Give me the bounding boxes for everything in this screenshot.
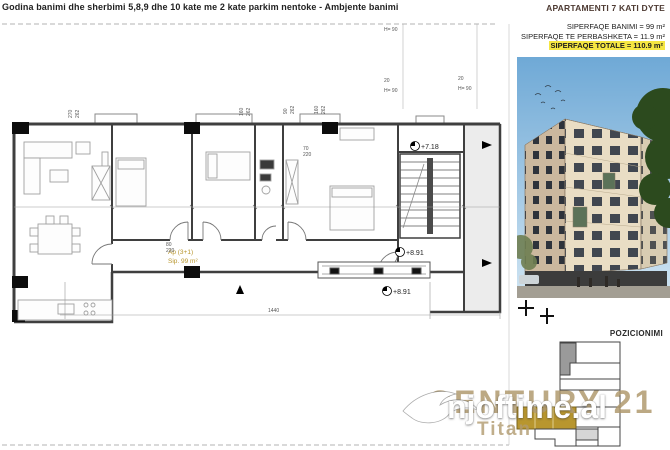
furniture: [18, 128, 374, 320]
entry-porch: [318, 262, 430, 278]
svg-text:262: 262: [75, 109, 81, 118]
svg-text:H= 90: H= 90: [384, 88, 398, 94]
svg-text:220: 220: [303, 152, 312, 158]
elevation-mid-label: +8.91: [406, 250, 424, 257]
elevation-lower-label: +8.91: [393, 289, 411, 296]
svg-text:160: 160: [314, 105, 320, 114]
svg-text:90: 90: [283, 108, 289, 114]
elevation-upper-label: +7.18: [421, 144, 439, 151]
area-line-totale: SIPERFAQE TOTALE = 110.9 m²: [549, 41, 665, 50]
common-corridor: [464, 124, 500, 312]
svg-text:20: 20: [458, 76, 464, 82]
apartment-info-block: APARTAMENTI 7 KATI DYTE SIPERFAQE BANIMI…: [521, 3, 665, 51]
unit-area-label: Sip. 99 m²: [168, 258, 198, 265]
svg-text:262: 262: [246, 107, 252, 116]
svg-text:270: 270: [68, 109, 74, 118]
street: [517, 286, 670, 298]
svg-text:262: 262: [321, 105, 327, 114]
svg-text:262: 262: [290, 105, 296, 114]
svg-text:160: 160: [239, 107, 245, 116]
svg-text:220: 220: [166, 248, 175, 254]
svg-text:H= 90: H= 90: [458, 86, 472, 92]
drawing-title: Godina banimi dhe sherbimi 5,8,9 dhe 10 …: [2, 2, 472, 12]
svg-text:H= 90: H= 90: [384, 27, 398, 33]
svg-text:1440: 1440: [268, 308, 279, 314]
building-render-photo: [517, 57, 670, 298]
ground-floor-shops: [525, 271, 667, 288]
portal-watermark: njoftime.al: [447, 389, 607, 426]
area-line-perbashketa: SIPERFAQE TE PERBASHKETA = 11.9 m²: [521, 32, 665, 42]
listing-image: Godina banimi dhe sherbimi 5,8,9 dhe 10 …: [0, 0, 670, 450]
area-line-banimi: SIPERFAQE BANIMI = 99 m²: [521, 22, 665, 32]
area-summary: SIPERFAQE BANIMI = 99 m² SIPERFAQE TE PE…: [521, 22, 665, 51]
svg-text:20: 20: [384, 78, 390, 84]
parked-car: [519, 275, 539, 284]
staircase: [400, 154, 460, 238]
apartment-title: APARTAMENTI 7 KATI DYTE: [521, 3, 665, 13]
